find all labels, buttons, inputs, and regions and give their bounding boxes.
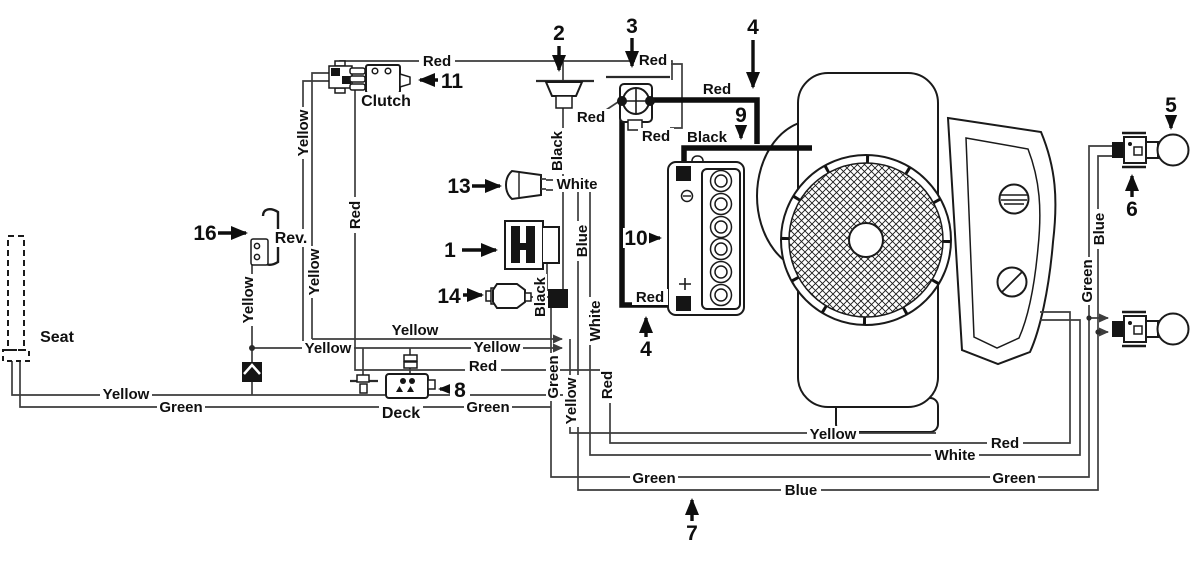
deck-connector-terminal <box>428 380 435 389</box>
shroud-screw-bottom <box>998 268 1027 297</box>
svg-text:2: 2 <box>553 22 565 45</box>
label-yellow-vert: Yellow <box>563 375 580 427</box>
svg-text:Yellow: Yellow <box>305 340 352 357</box>
label-red-clutch-vert: Red <box>347 197 364 233</box>
label-green-deck: Green <box>464 399 512 416</box>
clutch-prong-2 <box>350 76 365 82</box>
label-green-right-bottom: Green <box>990 470 1038 487</box>
fuse-lower <box>556 96 572 108</box>
svg-text:Red: Red <box>642 128 670 145</box>
rev-switch-contact-1 <box>254 243 259 248</box>
svg-text:Yellow: Yellow <box>306 248 323 295</box>
callout-2: 2 <box>549 22 569 70</box>
label-green-vert: Green <box>545 353 562 401</box>
headlight-bottom-bulb <box>1158 314 1189 345</box>
svg-text:Yellow: Yellow <box>563 377 580 424</box>
callout-5: 5 <box>1161 94 1181 128</box>
solenoid-terminal-left <box>617 96 627 106</box>
svg-text:Red: Red <box>991 435 1019 452</box>
clutch-prong-1 <box>350 68 365 74</box>
fuse-holder <box>536 81 594 108</box>
callout-4-bottom: 4 <box>636 318 656 361</box>
callout-9: 9 <box>731 104 751 138</box>
clutch-assembly <box>329 61 410 93</box>
component-labels: Seat Clutch Rev. Deck <box>35 92 423 422</box>
deck-clamp-stem <box>360 384 367 393</box>
svg-text:Red: Red <box>636 289 664 306</box>
svg-text:Green: Green <box>545 355 562 398</box>
interlock-module <box>505 221 559 269</box>
wiring-diagram: Red Red Red Red Red Red Red Red Red Red … <box>0 0 1200 561</box>
engine <box>757 73 1055 432</box>
label-red-deck: Red <box>465 358 501 375</box>
svg-text:Green: Green <box>632 470 675 487</box>
svg-text:Clutch: Clutch <box>361 93 411 110</box>
svg-text:13: 13 <box>447 175 470 198</box>
label-deck: Deck <box>379 404 423 422</box>
label-green-bottom: Green <box>630 470 678 487</box>
svg-text:Seat: Seat <box>40 329 74 346</box>
label-yellow-mid-right: Yellow <box>471 339 523 356</box>
svg-text:Black: Black <box>687 129 728 146</box>
svg-text:3: 3 <box>626 15 638 38</box>
label-seat: Seat <box>35 328 79 346</box>
callout-1: 1 <box>440 239 496 262</box>
wiring-diagram-page: Red Red Red Red Red Red Red Red Red Red … <box>0 0 1200 561</box>
svg-text:4: 4 <box>640 338 652 361</box>
label-red-vert: Red <box>599 367 616 403</box>
solenoid-terminal-right <box>645 96 655 106</box>
label-yellow-left-lower: Yellow <box>306 246 323 298</box>
svg-text:Green: Green <box>1079 259 1096 302</box>
deck-connector-body <box>386 374 428 398</box>
headlight-top <box>1112 133 1189 167</box>
svg-text:11: 11 <box>441 70 464 93</box>
rev-switch-contact-2 <box>254 254 259 259</box>
label-yellow-bottom: Yellow <box>807 426 859 443</box>
callout-11: 11 <box>420 70 465 93</box>
label-blue-right: Blue <box>1091 209 1108 249</box>
svg-text:Yellow: Yellow <box>474 339 521 356</box>
leader-red-bracket <box>668 64 682 128</box>
svg-text:Blue: Blue <box>785 482 818 499</box>
callout-13: 13 <box>446 175 500 198</box>
seat-base <box>3 350 29 361</box>
battery-terminal-negative <box>676 166 691 181</box>
svg-text:White: White <box>935 447 976 464</box>
svg-text:Red: Red <box>347 201 364 229</box>
deck-plug-a <box>404 355 417 361</box>
label-red-battery: Red <box>632 289 668 306</box>
svg-text:Red: Red <box>423 53 451 70</box>
callout-4-top: 4 <box>743 16 763 87</box>
key-switch-terminal <box>525 293 531 301</box>
label-yellow-mid-left: Yellow <box>302 340 354 357</box>
svg-text:Black: Black <box>532 276 549 317</box>
svg-text:Green: Green <box>992 470 1035 487</box>
label-red-sol-bottom: Red <box>638 128 674 145</box>
label-yellow-seat: Yellow <box>100 386 152 403</box>
rev-switch-body <box>251 239 268 265</box>
svg-text:Yellow: Yellow <box>240 276 257 323</box>
light-switch-body <box>506 171 541 199</box>
svg-text:6: 6 <box>1126 198 1138 221</box>
headlight-bottom-neck <box>1146 321 1158 337</box>
svg-text:Red: Red <box>469 358 497 375</box>
deck-clamp-top <box>357 375 369 382</box>
svg-text:Red: Red <box>577 109 605 126</box>
label-red-bottom: Red <box>987 435 1023 452</box>
svg-text:White: White <box>587 301 604 342</box>
svg-text:Blue: Blue <box>1091 213 1108 246</box>
svg-text:Red: Red <box>703 81 731 98</box>
label-green-seat: Green <box>157 399 205 416</box>
callout-16: 16 <box>192 222 246 245</box>
fuse-cup <box>546 82 582 96</box>
label-white-switch: White <box>553 176 601 193</box>
callout-10: 10 <box>623 227 660 250</box>
label-red-sol-out: Red <box>699 81 735 98</box>
svg-text:Green: Green <box>159 399 202 416</box>
headlight-top-neck <box>1146 142 1158 158</box>
junction-dot-rev <box>249 345 255 351</box>
wire-yellow-left-inner <box>312 73 330 339</box>
key-switch-body <box>493 284 525 308</box>
seat-switch <box>3 236 29 361</box>
label-blue-vert: Blue <box>574 221 591 261</box>
label-green-right: Green <box>1079 257 1096 305</box>
shroud-screw-top <box>1000 185 1029 214</box>
svg-text:Yellow: Yellow <box>103 386 150 403</box>
svg-text:10: 10 <box>624 227 647 250</box>
svg-text:14: 14 <box>437 285 461 308</box>
module-shell <box>543 227 559 263</box>
junction-block <box>548 289 568 308</box>
label-yellow-left-upper: Yellow <box>295 107 312 159</box>
seat-post <box>8 236 24 350</box>
label-red-sol-top: Red <box>635 52 671 69</box>
battery <box>668 156 744 315</box>
clutch-prong-3 <box>350 84 365 90</box>
svg-text:8: 8 <box>454 379 466 402</box>
headlight-top-terminal <box>1112 142 1124 158</box>
label-yellow-rev: Yellow <box>240 274 257 326</box>
svg-text:16: 16 <box>193 222 216 245</box>
svg-text:Red: Red <box>639 52 667 69</box>
headlight-bottom-terminal <box>1112 321 1124 337</box>
svg-text:Yellow: Yellow <box>392 322 439 339</box>
label-red-clutch-top: Red <box>419 53 455 70</box>
svg-text:White: White <box>557 176 598 193</box>
headlight-bottom <box>1112 312 1189 346</box>
junction-dot-blue <box>1095 329 1100 334</box>
battery-terminal-positive <box>676 296 691 311</box>
svg-text:Green: Green <box>466 399 509 416</box>
label-white-bottom: White <box>931 447 979 464</box>
callout-6: 6 <box>1122 176 1142 221</box>
headlight-top-bulb <box>1158 135 1189 166</box>
label-rev: Rev. <box>273 229 309 247</box>
callout-14: 14 <box>436 285 482 308</box>
svg-text:Deck: Deck <box>382 405 420 422</box>
label-blue-bottom: Blue <box>781 482 821 499</box>
flywheel-center-hole <box>849 223 883 257</box>
svg-text:9: 9 <box>735 104 747 127</box>
junction-dot-green <box>1086 315 1091 320</box>
diode <box>242 362 262 382</box>
callout-8: 8 <box>440 379 470 402</box>
key-switch <box>486 284 531 308</box>
label-white-vert: White <box>587 297 604 345</box>
svg-text:Red: Red <box>599 371 616 399</box>
headlight-switch <box>506 171 546 199</box>
clutch-terminal <box>400 74 410 87</box>
label-clutch: Clutch <box>359 92 413 110</box>
label-red-sol-left: Red <box>573 109 609 126</box>
svg-text:Rev.: Rev. <box>275 230 308 247</box>
svg-text:Yellow: Yellow <box>810 426 857 443</box>
svg-text:5: 5 <box>1165 94 1177 117</box>
svg-text:4: 4 <box>747 16 759 39</box>
clutch-body <box>366 65 400 93</box>
label-yellow-mid-upper: Yellow <box>389 322 441 339</box>
svg-text:Blue: Blue <box>574 225 591 258</box>
label-black-key: Black <box>532 274 549 320</box>
svg-text:Black: Black <box>549 130 566 171</box>
svg-text:Yellow: Yellow <box>295 109 312 156</box>
svg-text:1: 1 <box>444 239 456 262</box>
label-black-fuse: Black <box>549 128 566 174</box>
label-black-battery: Black <box>684 129 730 146</box>
svg-text:7: 7 <box>686 522 698 545</box>
deck-plug-b <box>404 362 417 368</box>
callout-7: 7 <box>682 500 702 545</box>
